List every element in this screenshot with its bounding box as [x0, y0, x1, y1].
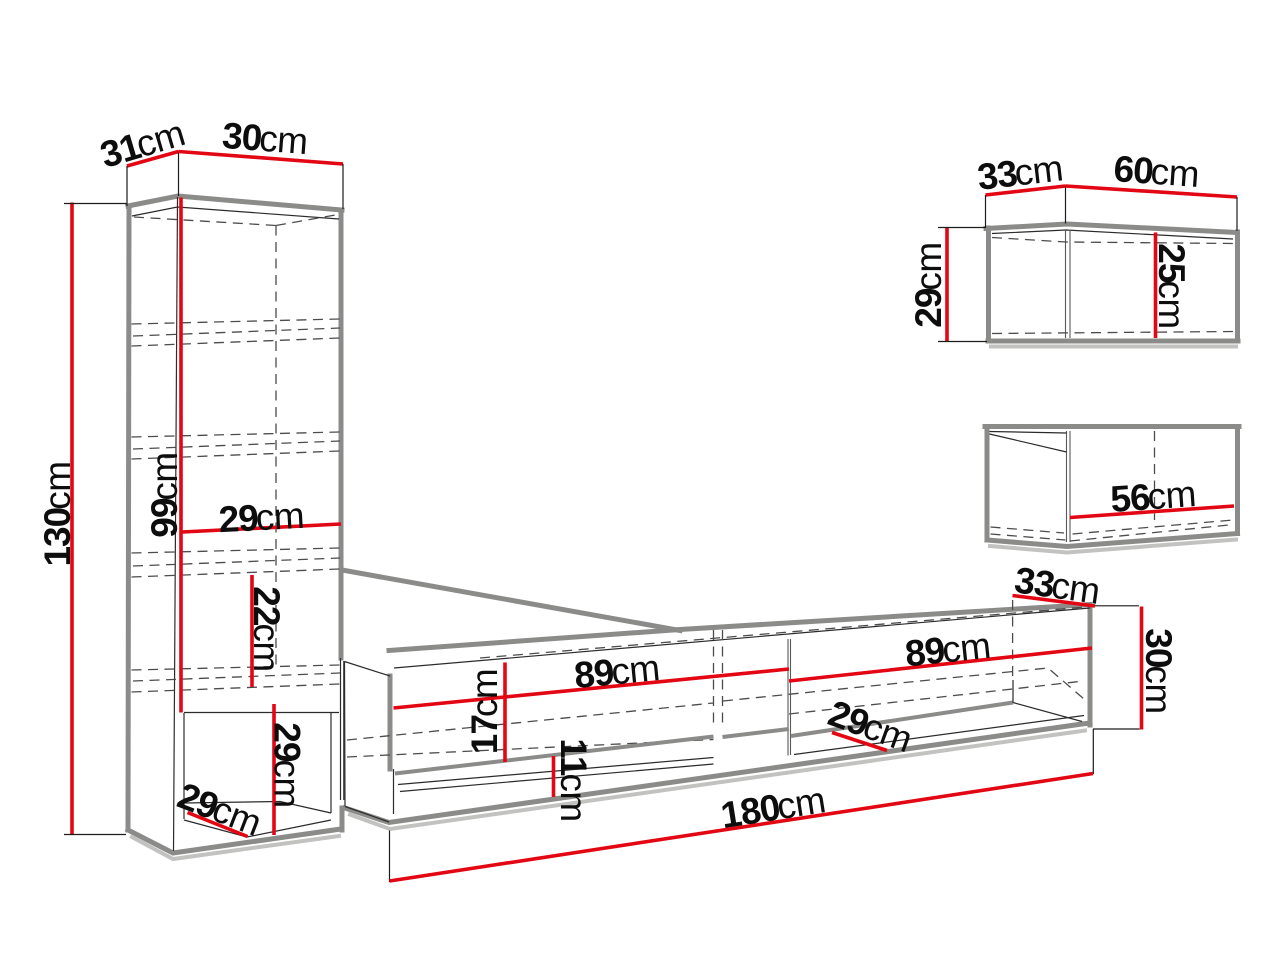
svg-text:60cm: 60cm — [1112, 148, 1200, 195]
svg-text:29cm: 29cm — [218, 495, 306, 540]
svg-text:130cm: 130cm — [37, 461, 78, 566]
svg-text:17cm: 17cm — [464, 669, 505, 754]
svg-text:30cm: 30cm — [221, 115, 309, 162]
svg-text:30cm: 30cm — [1138, 628, 1179, 713]
svg-text:29cm: 29cm — [908, 242, 949, 327]
svg-text:11cm: 11cm — [553, 738, 594, 821]
svg-text:25cm: 25cm — [1151, 243, 1192, 328]
svg-text:89cm: 89cm — [572, 647, 661, 696]
svg-text:22cm: 22cm — [246, 586, 287, 671]
svg-text:99cm: 99cm — [144, 452, 185, 537]
svg-text:56cm: 56cm — [1109, 473, 1197, 520]
svg-text:29cm: 29cm — [267, 722, 308, 807]
